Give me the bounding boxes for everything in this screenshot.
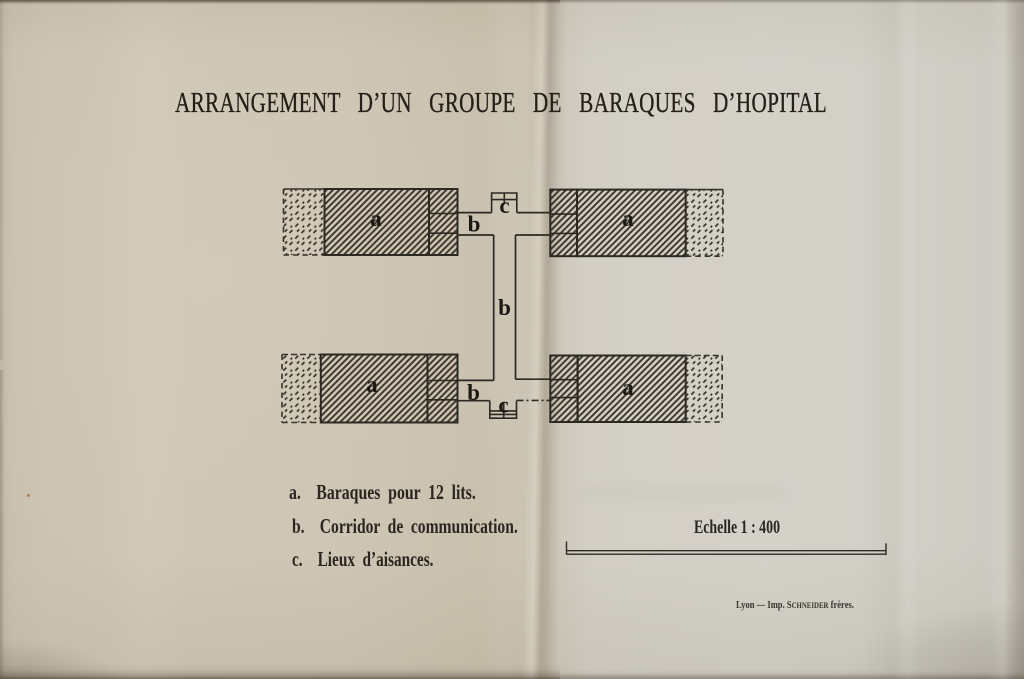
svg-text:a: a: [622, 375, 634, 400]
svg-text:b: b: [498, 295, 511, 320]
svg-text:b: b: [468, 212, 481, 237]
svg-text:c: c: [499, 193, 509, 218]
svg-text:c: c: [498, 393, 508, 418]
svg-text:a: a: [622, 206, 634, 231]
svg-text:a: a: [366, 372, 378, 397]
svg-text:a: a: [370, 206, 382, 231]
svg-text:b: b: [467, 380, 480, 405]
